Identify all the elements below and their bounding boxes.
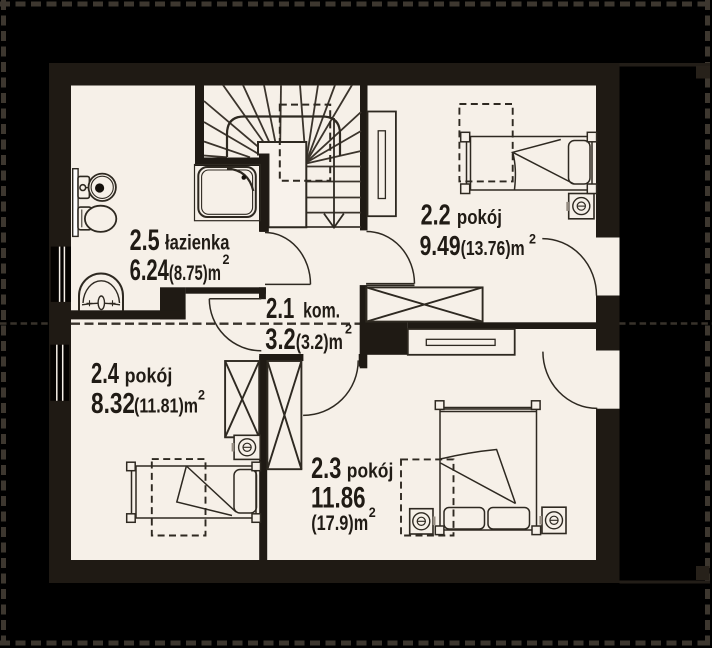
svg-text:2: 2 bbox=[369, 505, 376, 520]
svg-text:łazienka: łazienka bbox=[165, 232, 230, 255]
svg-text:(17.9)m: (17.9)m bbox=[311, 512, 368, 535]
svg-text:2: 2 bbox=[529, 232, 536, 247]
svg-text:kom.: kom. bbox=[303, 299, 340, 323]
svg-text:2.3: 2.3 bbox=[311, 452, 341, 485]
svg-text:2.2: 2.2 bbox=[421, 200, 451, 232]
svg-text:(13.76)m: (13.76)m bbox=[461, 237, 525, 260]
svg-text:3.2: 3.2 bbox=[265, 323, 295, 356]
svg-text:6.24: 6.24 bbox=[130, 254, 170, 287]
svg-text:2: 2 bbox=[223, 252, 230, 267]
svg-text:2.4: 2.4 bbox=[91, 358, 119, 390]
svg-text:8.32: 8.32 bbox=[91, 388, 135, 420]
svg-text:2.1: 2.1 bbox=[266, 293, 294, 325]
svg-text:11.86: 11.86 bbox=[311, 482, 366, 515]
svg-text:pokój: pokój bbox=[457, 206, 502, 229]
svg-text:pokój: pokój bbox=[125, 365, 173, 388]
svg-text:(11.81)m: (11.81)m bbox=[134, 395, 198, 418]
svg-text:9.49: 9.49 bbox=[420, 230, 461, 261]
svg-text:2.5: 2.5 bbox=[130, 224, 160, 257]
svg-text:2: 2 bbox=[198, 388, 205, 403]
svg-text:pokój: pokój bbox=[347, 459, 394, 482]
svg-text:(8.75)m: (8.75)m bbox=[169, 262, 221, 285]
svg-text:(3.2)m: (3.2)m bbox=[296, 331, 343, 354]
svg-text:2: 2 bbox=[345, 321, 352, 336]
